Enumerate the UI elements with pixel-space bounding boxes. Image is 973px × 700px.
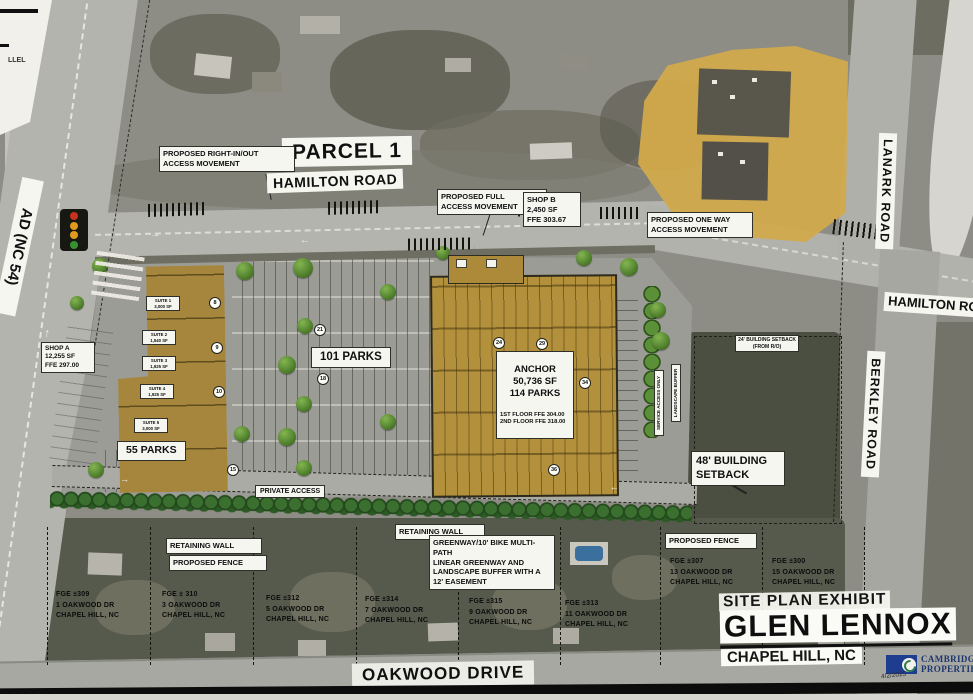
lot-address: 3 OAKWOOD DR [162, 601, 225, 612]
lot-address: 15 OAKWOOD DR [772, 568, 835, 579]
lot-fge: FGE ±314 [365, 595, 428, 606]
tree [296, 460, 312, 476]
lot-label: FGE ±314 7 OAKWOOD DR CHAPEL HILL, NC [365, 595, 428, 627]
traffic-signal-icon [60, 209, 88, 251]
parcel1-label: PARCEL 1 [282, 136, 412, 168]
lot-city: CHAPEL HILL, NC [772, 578, 835, 589]
lot-line [660, 527, 661, 665]
lot-fge: FGE ±312 [266, 594, 329, 605]
proposed-fence-label-east: PROPOSED FENCE [665, 533, 757, 549]
logo-circle [902, 658, 916, 672]
cambridge-logo-text: CAMBRIDGE PROPERTIES [921, 654, 973, 675]
lane-arrow: → [150, 229, 160, 240]
roof [88, 552, 123, 575]
lane-arrow: ← [610, 482, 619, 492]
corner-mark [0, 44, 9, 47]
one-way-callout: PROPOSED ONE WAY ACCESS MOVEMENT [647, 212, 753, 238]
logo-text-bottom: PROPERTIES [921, 664, 973, 674]
crosswalk-hatch [328, 200, 380, 215]
shop-b-label: SHOP B 2,450 SF FFE 303.67 [523, 192, 581, 227]
lot-line [150, 527, 151, 665]
lot-fge: FGE ±315 [469, 597, 532, 608]
tree [278, 428, 296, 446]
lane-arrow: ← [300, 235, 310, 246]
lot-fge: FGE ±300 [772, 557, 835, 568]
tree [620, 258, 638, 276]
roof [205, 633, 235, 651]
lot-label: FGE ± 310 3 OAKWOOD DR CHAPEL HILL, NC [162, 590, 225, 622]
project-city: CHAPEL HILL, NC [721, 647, 862, 666]
lane-arrow: → [120, 474, 129, 484]
tree [297, 318, 313, 334]
lot-address: 1 OAKWOOD DR [56, 601, 119, 612]
lot-label: FGE ±307 13 OAKWOOD DR CHAPEL HILL, NC [670, 557, 733, 589]
tree [234, 426, 250, 442]
lot-label: FGE ±313 11 OAKWOOD DR CHAPEL HILL, NC [565, 599, 628, 631]
roof [428, 622, 459, 641]
site-plan-exhibit: → ← ↑ → ← 8 9 10 21 18 24 29 34 36 15 LL… [0, 0, 973, 700]
greenway-callout: GREENWAY/10' BIKE MULTI-PATH LINEAR GREE… [429, 535, 555, 590]
landscape-buffer-label: LANDSCAPE BUFFER [671, 364, 681, 422]
setback-boundary [694, 336, 842, 524]
lot-address: 13 OAKWOOD DR [670, 568, 733, 579]
suite-label: SUITE 3 1,925 SF [142, 356, 176, 371]
parking-count-badge: 10 [213, 386, 225, 398]
lot-fge: FGE ± 310 [162, 590, 225, 601]
corner-mark [0, 9, 38, 13]
lot-line [560, 527, 561, 665]
right-in-out-callout: PROPOSED RIGHT-IN/OUT ACCESS MOVEMENT [159, 146, 295, 172]
roof [558, 53, 589, 71]
anchor-title: ANCHOR 50,736 SF 114 PARKS [500, 364, 570, 401]
suite-label: SUITE 1 3,000 SF [146, 296, 180, 311]
lot-fge: FGE ±309 [56, 590, 119, 601]
suite-label: SUITE 2 1,540 SF [142, 330, 176, 345]
private-access-label: PRIVATE ACCESS [255, 485, 325, 498]
tree [380, 414, 396, 430]
parcel1-building [697, 68, 791, 137]
suite-label: SUITE 5 3,000 SF [134, 418, 168, 433]
lot-label: FGE ±309 1 OAKWOOD DR CHAPEL HILL, NC [56, 590, 119, 622]
lot-address: 9 OAKWOOD DR [469, 608, 532, 619]
crosswalk-hatch [148, 202, 206, 217]
lot-label: FGE ±300 15 OAKWOOD DR CHAPEL HILL, NC [772, 557, 835, 589]
west-parking-label: 55 PARKS [117, 441, 186, 461]
crosswalk-hatch [600, 207, 640, 219]
lot-fge: FGE ±313 [565, 599, 628, 610]
lot-label: FGE ±315 9 OAKWOOD DR CHAPEL HILL, NC [469, 597, 532, 629]
parking-count-badge: 8 [209, 297, 221, 309]
roof [300, 16, 340, 34]
setback-24-label: 24' BUILDING SETBACK (FROM R/O) [735, 335, 799, 352]
lot-city: CHAPEL HILL, NC [56, 611, 119, 622]
rooftop-unit [718, 152, 723, 156]
crosswalk-ladder [91, 249, 145, 301]
tree [650, 302, 666, 318]
lot-city: CHAPEL HILL, NC [670, 578, 733, 589]
parking-count-badge: 15 [227, 464, 239, 476]
tree [236, 262, 254, 280]
parking-count-badge: 34 [579, 377, 591, 389]
proposed-fence-label-west: PROPOSED FENCE [169, 555, 267, 571]
project-title-text: GLEN LENNOX [720, 607, 956, 643]
central-parking-label: 101 PARKS [311, 347, 391, 368]
tree [652, 332, 670, 350]
project-title: GLEN LENNOX [720, 607, 953, 648]
tree [293, 258, 313, 278]
pool [575, 546, 603, 561]
lot-city: CHAPEL HILL, NC [365, 616, 428, 627]
parking-count-badge: 29 [536, 338, 548, 350]
rooftop-unit [712, 80, 717, 84]
anchor-floors: 1ST FLOOR FFE 304.00 2ND FLOOR FFE 318.0… [500, 412, 570, 427]
setback-48-label: 48' BUILDING SETBACK [691, 451, 785, 486]
parcel1-building-wing [701, 141, 768, 200]
lot-label: FGE ±312 5 OAKWOOD DR CHAPEL HILL, NC [266, 594, 329, 626]
lot-city: CHAPEL HILL, NC [162, 611, 225, 622]
service-access-label: SERVICE ACCESS ONLY [654, 370, 664, 436]
signal-amber-light [70, 231, 78, 239]
roof [530, 142, 573, 159]
roof [194, 53, 232, 79]
parking-count-badge: 36 [548, 464, 560, 476]
anchor-label: ANCHOR 50,736 SF 114 PARKS 1ST FLOOR FFE… [496, 351, 574, 439]
lot-city: CHAPEL HILL, NC [266, 615, 329, 626]
corner-text-fragment: LLEL [8, 57, 26, 64]
suite-label: SUITE 4 1,925 SF [140, 384, 174, 399]
lot-line [356, 527, 357, 665]
lot-address: 11 OAKWOOD DR [565, 610, 628, 621]
tree [88, 462, 104, 478]
lot-address: 5 OAKWOOD DR [266, 605, 329, 616]
roof [298, 640, 326, 656]
roof [445, 58, 471, 72]
signal-red-light [70, 212, 78, 220]
signal-amber-light [70, 222, 78, 230]
median-hatch [408, 237, 474, 250]
parking-count-badge: 18 [317, 373, 329, 385]
tree [70, 296, 84, 310]
parking-count-badge: 21 [314, 324, 326, 336]
lot-address: 7 OAKWOOD DR [365, 606, 428, 617]
tree [278, 356, 296, 374]
lot-city: CHAPEL HILL, NC [469, 618, 532, 629]
photo-edge-light [0, 694, 973, 700]
tree [380, 284, 396, 300]
tree [296, 396, 312, 412]
rooftop-unit [740, 160, 745, 164]
parking-count-badge: 9 [211, 342, 223, 354]
parking-count-badge: 24 [493, 337, 505, 349]
logo-text-top: CAMBRIDGE [921, 654, 973, 664]
oakwood-road-label: OAKWOOD DRIVE [352, 660, 535, 687]
tree [576, 250, 592, 266]
texture-lot-patch [612, 555, 677, 600]
shop-b-roof-chip [486, 259, 497, 268]
lot-line [47, 527, 48, 665]
retaining-wall-label-west: RETAINING WALL [166, 538, 262, 554]
rooftop-unit [752, 78, 757, 82]
rooftop-unit [730, 95, 735, 99]
lot-fge: FGE ±307 [670, 557, 733, 568]
signal-green-light [70, 241, 78, 249]
lot-city: CHAPEL HILL, NC [565, 620, 628, 631]
shop-b-roof-chip [456, 259, 467, 268]
roof [252, 72, 282, 92]
shop-a-label: SHOP A 12,255 SF FFE 297.00 [41, 342, 95, 373]
